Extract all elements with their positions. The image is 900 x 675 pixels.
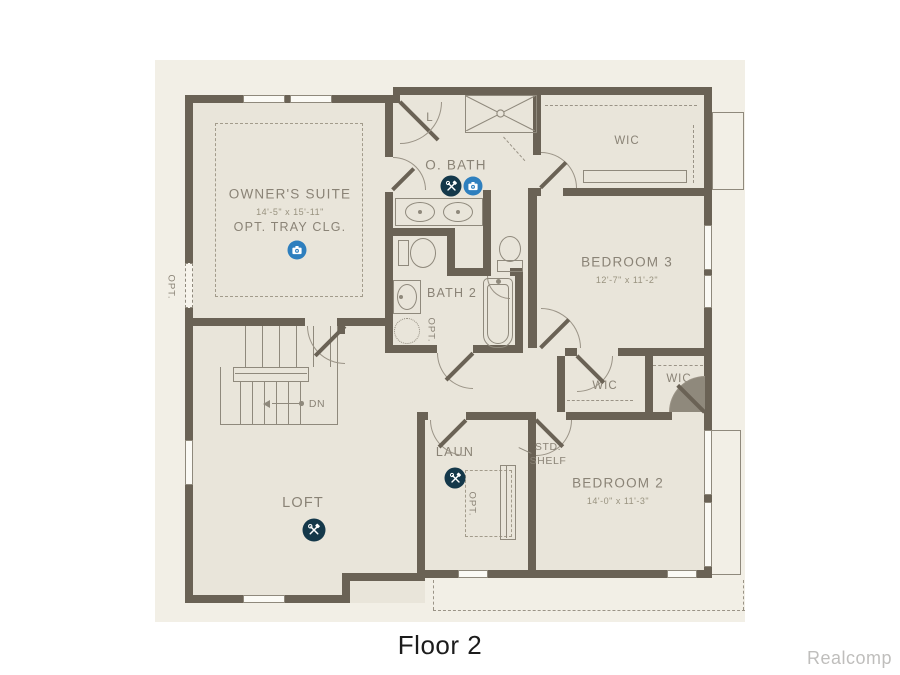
tools-glyph <box>307 523 322 538</box>
down-arrow-head <box>263 400 270 408</box>
closet-shelf-line <box>653 365 703 366</box>
closet-label: WIC <box>614 135 639 147</box>
camera-icon[interactable] <box>288 241 307 260</box>
optional-fixture-outline <box>394 318 420 344</box>
window <box>667 570 697 578</box>
faucet <box>456 210 460 214</box>
wall-segment <box>345 318 393 326</box>
shelf-inner-line <box>506 466 507 538</box>
stair-tread <box>296 326 297 367</box>
exterior-line <box>712 574 740 575</box>
window <box>458 570 488 578</box>
faucet <box>418 210 422 214</box>
floor-caption: Floor 2 <box>0 630 880 661</box>
stair-edge-line <box>220 424 337 425</box>
roof-dashed-line <box>743 580 744 610</box>
wall-segment <box>193 318 305 326</box>
wall-segment <box>385 345 437 353</box>
closet-rod-line <box>545 105 697 106</box>
watermark: Realcomp <box>807 648 892 669</box>
shower <box>465 95 537 133</box>
faucet <box>399 295 403 299</box>
window <box>704 225 712 270</box>
wall-segment <box>515 272 523 353</box>
toilet-tank <box>497 260 523 272</box>
wall-segment <box>417 412 425 573</box>
tools-glyph <box>448 471 462 485</box>
stair-tread <box>262 326 263 367</box>
room-note: OPT. TRAY CLG. <box>234 220 347 234</box>
std-shelf-label: STD. <box>535 441 561 453</box>
wall-segment <box>565 348 577 356</box>
opt-cabinet-label: OPT. <box>467 491 478 516</box>
closet-rod-line <box>693 125 694 183</box>
closet-shelf <box>583 170 687 183</box>
exterior-line <box>740 430 741 575</box>
room-dimensions: 14'-5" x 15'-11" <box>256 207 324 217</box>
shower-glass-lines <box>466 96 535 131</box>
shelf <box>500 465 516 540</box>
room-label: BEDROOM 2 <box>572 476 664 491</box>
wall-segment <box>185 95 193 603</box>
toilet-bowl <box>410 238 436 268</box>
camera-icon[interactable] <box>464 177 483 196</box>
down-label: DN <box>309 398 325 410</box>
wall-segment <box>528 412 536 420</box>
wall-segment <box>447 232 455 276</box>
tools-icon[interactable] <box>303 519 326 542</box>
floor-plan: OWNER'S SUITE 14'-5" x 15'-11" OPT. TRAY… <box>155 60 745 622</box>
wall-segment <box>557 356 565 412</box>
down-arrow-line <box>272 403 302 404</box>
window <box>243 595 285 603</box>
stair-edge-line <box>220 367 221 425</box>
wall-segment <box>455 268 483 276</box>
closet-shelf-line <box>567 400 633 401</box>
down-arrow-dot <box>299 401 304 406</box>
window <box>290 95 332 103</box>
wall-segment <box>618 348 705 356</box>
bathtub-rim <box>487 284 509 344</box>
wall-segment <box>566 412 672 420</box>
tub-faucet <box>496 279 501 284</box>
window <box>704 502 712 567</box>
tools-icon[interactable] <box>441 176 462 197</box>
window <box>185 440 193 485</box>
roof-dashed-line <box>433 610 745 611</box>
roof-dashed-line <box>433 580 434 610</box>
toilet-bowl <box>499 236 521 262</box>
wall-segment <box>483 190 491 276</box>
wall-segment <box>645 348 653 420</box>
wall-segment <box>393 87 712 95</box>
wall-segment <box>528 188 537 348</box>
wall-segment <box>385 192 393 353</box>
opt-fixture-label: OPT. <box>426 317 437 342</box>
exterior-line <box>712 430 740 431</box>
page: OWNER'S SUITE 14'-5" x 15'-11" OPT. TRAY… <box>0 0 900 675</box>
wall-segment <box>393 228 455 236</box>
camera-glyph <box>291 244 304 257</box>
tools-icon[interactable] <box>445 468 466 489</box>
room-dimensions: 12'-7" x 11'-2" <box>596 275 658 285</box>
optional-window <box>185 263 193 308</box>
wall-segment <box>563 188 705 196</box>
room-label: LOFT <box>282 495 324 511</box>
window <box>704 430 712 495</box>
tools-glyph <box>444 179 458 193</box>
stair-landing-rail <box>233 367 309 382</box>
stair-tread <box>279 326 280 367</box>
stair-landing-rail-inner <box>235 373 307 374</box>
std-shelf-label: SHELF <box>530 455 567 467</box>
window <box>704 275 712 308</box>
stair-tread <box>252 381 253 425</box>
toilet-tank <box>398 240 409 266</box>
stair-tread <box>240 381 241 425</box>
room-label: BEDROOM 3 <box>581 255 673 270</box>
wall-segment <box>342 573 425 581</box>
wall-segment <box>466 412 528 420</box>
window <box>243 95 285 103</box>
room-label: O. BATH <box>425 158 486 173</box>
exterior-feature-outline <box>712 112 744 190</box>
room-dimensions: 14'-0" x 11'-3" <box>587 496 649 506</box>
stair-tread <box>245 326 246 367</box>
camera-glyph <box>467 180 480 193</box>
room-label: OWNER'S SUITE <box>229 187 351 202</box>
room-label: BATH 2 <box>427 286 477 300</box>
wall-segment <box>385 95 393 157</box>
opt-window-label: OPT. <box>166 274 177 299</box>
